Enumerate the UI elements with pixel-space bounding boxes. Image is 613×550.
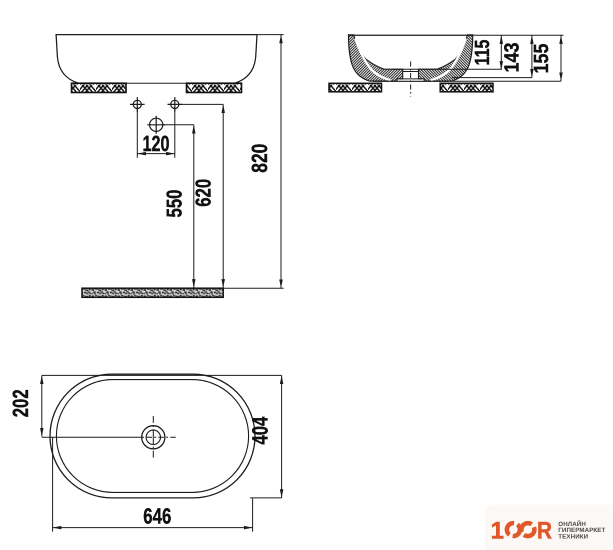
- svg-text:404: 404: [248, 416, 273, 445]
- svg-text:155: 155: [530, 44, 553, 74]
- svg-text:143: 143: [501, 43, 524, 73]
- svg-text:115: 115: [471, 40, 494, 66]
- svg-text:R: R: [537, 517, 552, 544]
- svg-text:620: 620: [192, 179, 216, 207]
- svg-text:550: 550: [163, 189, 187, 217]
- svg-text:1: 1: [491, 517, 504, 544]
- svg-text:646: 646: [143, 503, 171, 528]
- svg-text:ТЕХНИКИ: ТЕХНИКИ: [558, 534, 588, 541]
- svg-text:820: 820: [247, 144, 272, 173]
- svg-text:120: 120: [143, 131, 170, 156]
- svg-text:202: 202: [8, 389, 33, 417]
